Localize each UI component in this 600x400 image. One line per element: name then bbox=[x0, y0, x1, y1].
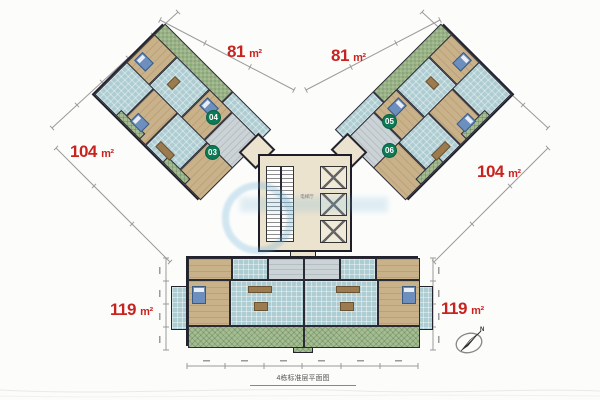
area-label-119-right: 119 m² bbox=[441, 299, 484, 319]
area-label-81-left: 81 m² bbox=[227, 42, 262, 62]
unit-bottom-right bbox=[304, 258, 420, 348]
bathroom bbox=[304, 258, 340, 280]
balcony bbox=[304, 326, 420, 348]
area-label-104-right: 104 m² bbox=[477, 162, 521, 182]
unit-badge-03: 03 bbox=[205, 145, 220, 160]
balcony bbox=[171, 286, 187, 330]
sofa bbox=[248, 286, 272, 293]
bed bbox=[192, 286, 206, 304]
unit-badge-04: 04 bbox=[206, 110, 221, 125]
elevator bbox=[320, 166, 347, 189]
unit-bottom-left bbox=[188, 258, 304, 348]
compass-icon: N bbox=[454, 327, 484, 356]
staircase bbox=[266, 166, 294, 242]
kitchen bbox=[232, 258, 268, 280]
bedroom bbox=[376, 258, 420, 280]
area-label-104-left: 104 m² bbox=[70, 142, 114, 162]
sofa bbox=[336, 286, 360, 293]
wing-bottom bbox=[186, 256, 418, 346]
table bbox=[254, 302, 268, 311]
plan-caption: 4栋标准层平面图 bbox=[250, 373, 356, 386]
area-label-81-right: 81 m² bbox=[331, 46, 366, 66]
area-label-119-left: 119 m² bbox=[110, 300, 153, 320]
balcony bbox=[188, 326, 304, 348]
elevator bbox=[320, 220, 347, 243]
elevator bbox=[320, 193, 347, 216]
compass-north-label: N bbox=[480, 327, 484, 333]
kitchen bbox=[340, 258, 376, 280]
elevator-core: 电梯厅 bbox=[258, 154, 352, 252]
unit-badge-05: 05 bbox=[382, 114, 397, 129]
bathroom bbox=[268, 258, 304, 280]
table bbox=[340, 302, 354, 311]
lobby-label: 电梯厅 bbox=[294, 194, 320, 199]
unit-badge-06: 06 bbox=[382, 143, 397, 158]
bed bbox=[402, 286, 416, 304]
bedroom bbox=[188, 258, 232, 280]
floorplan-canvas: N bbox=[0, 0, 600, 400]
